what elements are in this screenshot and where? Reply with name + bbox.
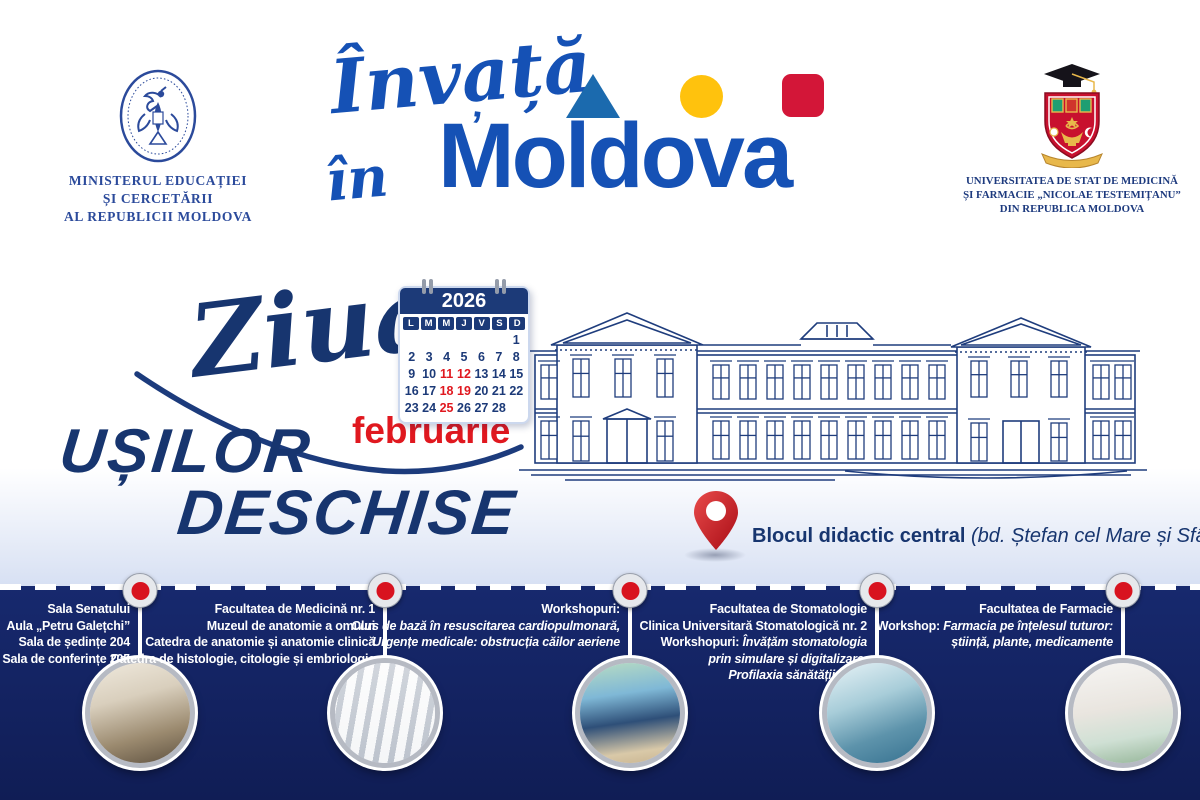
stop-photo-frame — [330, 658, 440, 768]
stop-text-line: Workshop: Farmacia pe înțelesul tuturor: — [793, 618, 1113, 635]
stop-text-line: prin simulare și digitalizare, — [547, 651, 867, 668]
stop-text-segment: Catedra de histologie, citologie și embr… — [111, 652, 375, 666]
stop-text-line: Facultatea de Farmacie — [793, 601, 1113, 618]
stop-text-segment: Workshop: — [877, 619, 944, 633]
stop-text-line: Profilaxia sănătății orale — [547, 667, 867, 684]
stop-photo-frame — [1068, 658, 1178, 768]
stop-text-segment: știință, plante, medicamente — [951, 635, 1113, 649]
stop-text-line: Catedra de histologie, citologie și embr… — [55, 651, 375, 668]
timeline-connector — [1121, 604, 1125, 662]
stop-photo-frame — [85, 658, 195, 768]
stop-text-block: Facultatea de FarmacieWorkshop: Farmacia… — [793, 601, 1113, 651]
program-timeline: Sala SenatuluiAula „Petru Galețchi”Sala … — [0, 0, 1200, 800]
stop-text-line: știință, plante, medicamente — [793, 634, 1113, 651]
open-doors-day-poster: MINISTERUL EDUCAȚIEI ȘI CERCETĂRII AL RE… — [0, 0, 1200, 800]
photo-pharmacy-lab — [1073, 663, 1173, 763]
photo-lecture-hall — [90, 663, 190, 763]
photo-anatomy-lab — [335, 663, 435, 763]
stop-photo-frame — [822, 658, 932, 768]
stop-text-segment: Farmacia pe înțelesul tuturor: — [943, 619, 1113, 633]
stop-text-segment: Facultatea de Farmacie — [979, 602, 1113, 616]
stop-text-segment: prin simulare și digitalizare, — [708, 652, 867, 666]
stop-text-segment: Workshopuri: — [661, 635, 743, 649]
photo-dental-clinic — [827, 663, 927, 763]
